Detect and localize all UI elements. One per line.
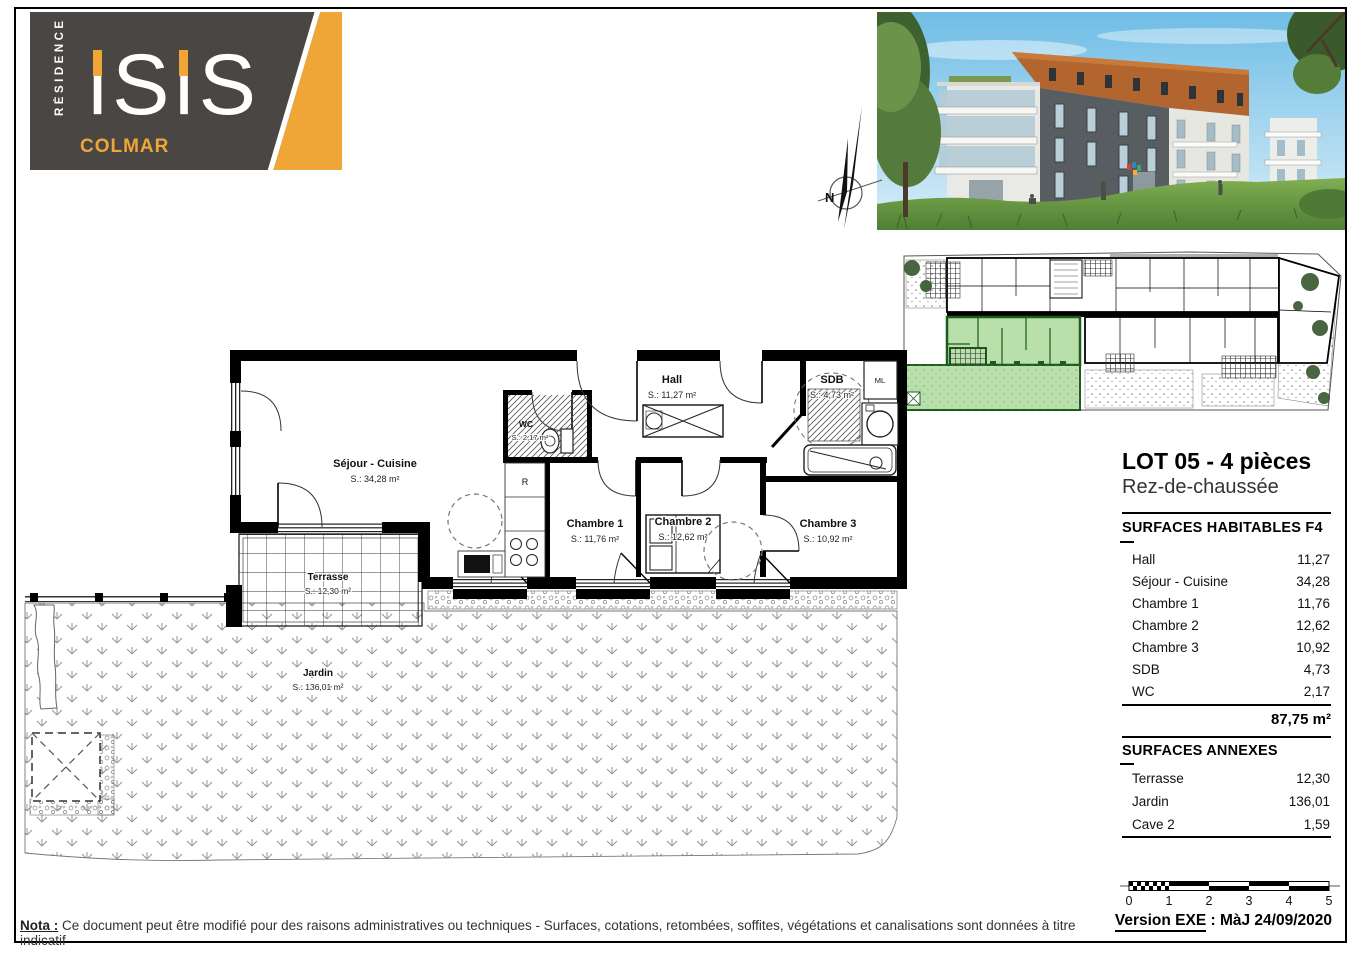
divider (1122, 512, 1331, 514)
nota-text: Nota : Ce document peut être modifié pou… (20, 918, 1120, 948)
svg-text:S.: 4,73 m²: S.: 4,73 m² (810, 390, 854, 400)
room-label-sdb: SDB (820, 374, 843, 386)
isis-i-dot-icon (179, 50, 188, 76)
window-sills (453, 589, 790, 599)
room-label-terrasse: Terrasse (308, 572, 349, 583)
room-label-hall: Hall (662, 374, 682, 386)
svg-text:2: 2 (1206, 894, 1213, 908)
svg-text:S.: 10,92 m²: S.: 10,92 m² (803, 534, 852, 544)
jardin-area (25, 593, 897, 861)
surfaces-annexes-header: SURFACES ANNEXES (1122, 743, 1278, 759)
svg-text:S.: 136,01 m²: S.: 136,01 m² (292, 682, 343, 692)
svg-text:S.: 12,62 m²: S.: 12,62 m² (658, 532, 707, 542)
kitchen-fixtures (458, 463, 545, 577)
svg-text:1: 1 (1166, 894, 1173, 908)
floor-plan: Séjour - Cuisine S.: 34,28 m² Hall S.: 1… (20, 345, 910, 905)
total-area: 87,75 m² (1122, 711, 1331, 728)
svg-text:S.: 34,28 m²: S.: 34,28 m² (350, 474, 399, 484)
svg-text:3: 3 (1246, 894, 1253, 908)
room-label-chambre1: Chambre 1 (567, 518, 624, 530)
plan-sheet-page: RÉSIDENCE iSiS COLMAR (0, 0, 1361, 953)
svg-text:4: 4 (1286, 894, 1293, 908)
residence-vertical-label: RÉSIDENCE (54, 30, 66, 116)
svg-text:S.: 11,27 m²: S.: 11,27 m² (648, 390, 696, 400)
surfaces-habitables-header: SURFACES HABITABLES F4 (1122, 520, 1323, 536)
isis-logo: RÉSIDENCE iSiS COLMAR (30, 12, 342, 170)
room-label-chambre2: Chambre 2 (655, 516, 712, 528)
washing-machine-label: ML (875, 376, 885, 385)
svg-text:S.: 11,76 m²: S.: 11,76 m² (571, 534, 619, 544)
room-label-wc: WC (519, 419, 533, 429)
divider (1120, 541, 1134, 543)
divider (1120, 763, 1134, 765)
room-label-chambre3: Chambre 3 (800, 518, 857, 530)
site-key-plan (890, 248, 1345, 432)
north-arrow: N (818, 100, 888, 235)
compass-n-label: N (825, 190, 834, 205)
version-date: : MàJ 24/09/2020 (1206, 912, 1332, 929)
hall-closet (643, 405, 723, 437)
divider (1122, 736, 1331, 738)
room-label-sejour: Séjour - Cuisine (333, 458, 417, 470)
svg-text:S.: 12,30 m²: S.: 12,30 m² (305, 586, 351, 596)
lot-title: LOT 05 - 4 pièces (1122, 448, 1311, 475)
isis-logo-text: iSiS (88, 42, 261, 128)
svg-text:5: 5 (1326, 894, 1333, 908)
colmar-label: COLMAR (80, 136, 169, 158)
version-note: Version EXE : MàJ 24/09/2020 (1020, 912, 1332, 930)
svg-text:S.: 2,17 m²: S.: 2,17 m² (512, 433, 549, 442)
version-label: Version EXE (1115, 912, 1206, 932)
scale-bar: 0 1 2 3 4 5 (1120, 874, 1342, 910)
fridge-label: R (522, 477, 529, 487)
cave-marker (30, 733, 114, 815)
floor-subtitle: Rez-de-chaussée (1122, 476, 1279, 499)
divider (1122, 704, 1331, 706)
divider (1122, 836, 1331, 838)
room-label-jardin: Jardin (303, 668, 333, 679)
isis-i-dot-icon (93, 50, 102, 76)
building-rendering-photo (877, 12, 1345, 230)
svg-text:0: 0 (1126, 894, 1133, 908)
nota-label: Nota : (20, 918, 58, 933)
